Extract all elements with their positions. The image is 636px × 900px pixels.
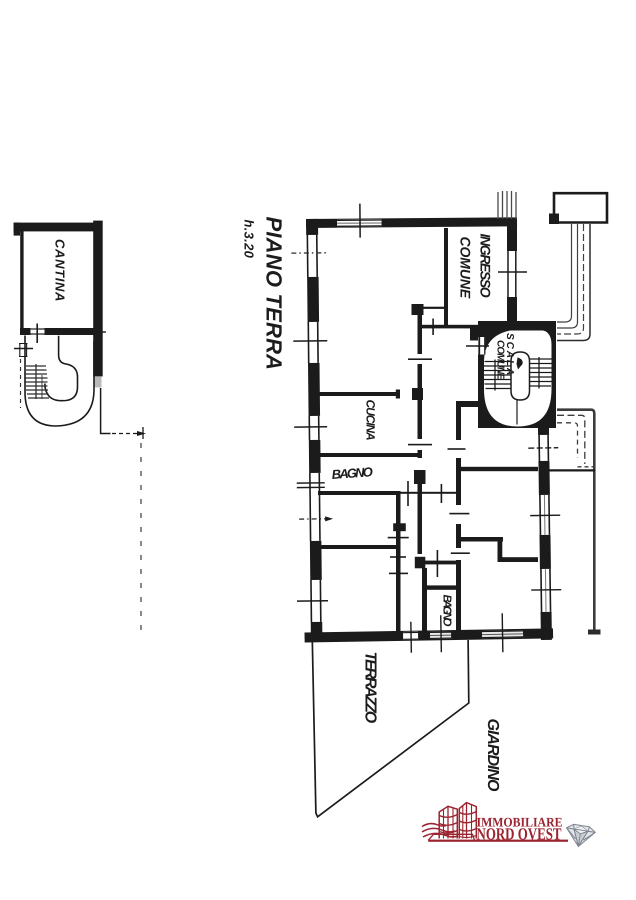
- svg-text:PIANO TERRA: PIANO TERRA: [262, 217, 287, 371]
- svg-text:h.3.20: h.3.20: [242, 220, 257, 259]
- svg-text:CANTINA: CANTINA: [53, 239, 68, 302]
- svg-text:BAGNO: BAGNO: [441, 595, 453, 627]
- svg-text:GIARDINO: GIARDINO: [484, 719, 501, 793]
- svg-text:COMUNE: COMUNE: [495, 340, 506, 380]
- svg-text:COMUNE: COMUNE: [458, 237, 474, 299]
- svg-text:TERRAZZO: TERRAZZO: [362, 652, 379, 724]
- svg-text:INGRESSO: INGRESSO: [478, 234, 494, 298]
- svg-text:NORD OVEST: NORD OVEST: [477, 825, 563, 844]
- svg-text:BAGNO: BAGNO: [331, 464, 373, 482]
- svg-text:CUCINA: CUCINA: [364, 400, 378, 440]
